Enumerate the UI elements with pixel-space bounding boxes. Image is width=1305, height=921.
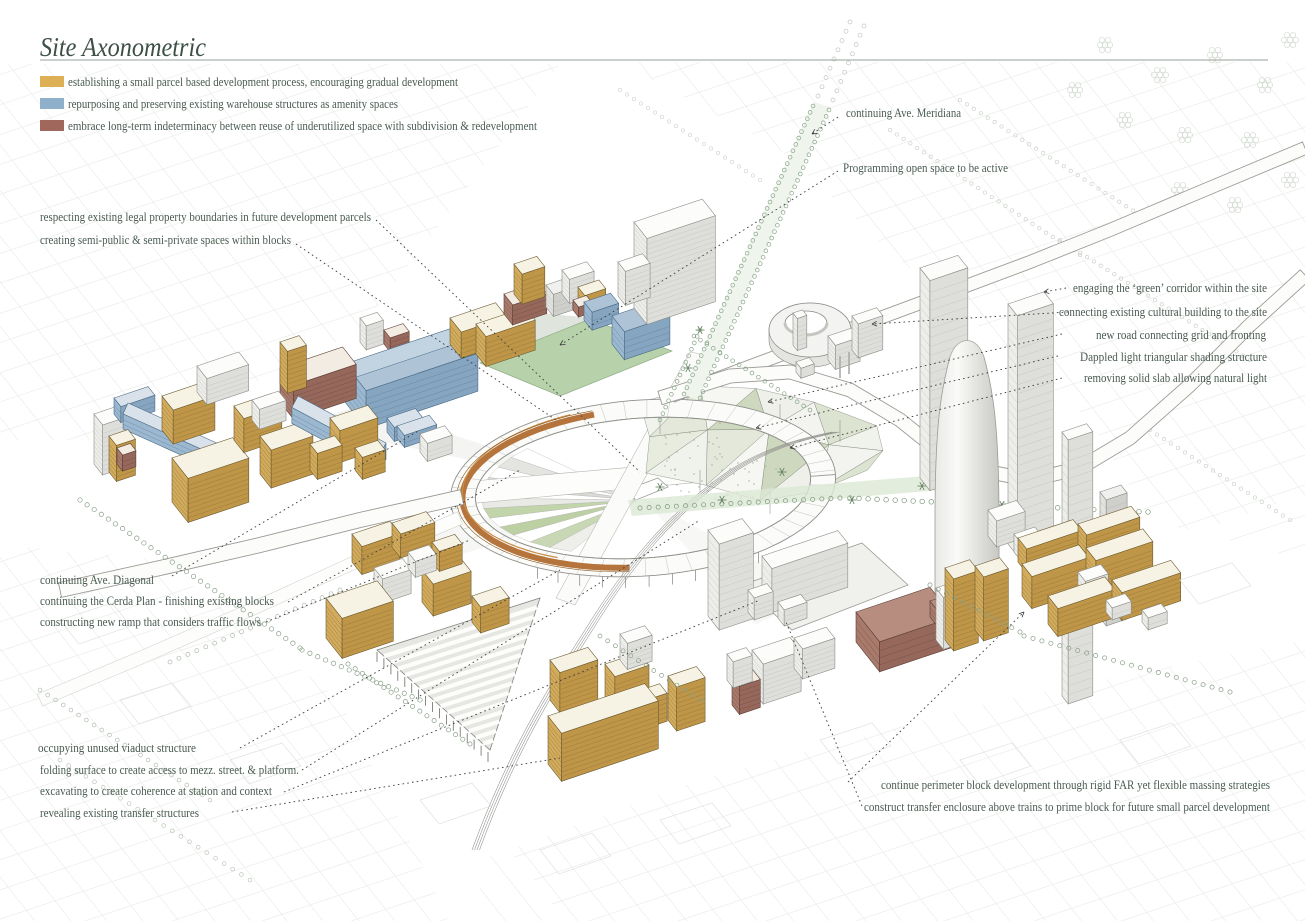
svg-text:connecting existing cultural b: connecting existing cultural building to… [1059, 305, 1267, 319]
svg-text:occupying unused viaduct struc: occupying unused viaduct structure [38, 741, 196, 755]
svg-text:folding surface to create acce: folding surface to create access to mezz… [40, 763, 299, 777]
svg-text:excavating to create coherence: excavating to create coherence at statio… [40, 784, 272, 798]
svg-text:continuing Ave. Meridiana: continuing Ave. Meridiana [846, 106, 961, 120]
svg-text:new road connecting grid and f: new road connecting grid and fronting [1096, 328, 1267, 342]
svg-text:creating semi-public & semi-pr: creating semi-public & semi-private spac… [40, 233, 291, 247]
svg-text:Dappled light triangular shadi: Dappled light triangular shading structu… [1080, 350, 1267, 364]
svg-text:repurposing and preserving exi: repurposing and preserving existing ware… [68, 97, 398, 111]
svg-text:continue perimeter block devel: continue perimeter block development thr… [881, 778, 1270, 792]
svg-text:continuing the Cerda Plan - fi: continuing the Cerda Plan - finishing ex… [40, 594, 274, 608]
svg-text:removing solid slab allowing n: removing solid slab allowing natural lig… [1084, 371, 1267, 385]
svg-text:respecting existing legal prop: respecting existing legal property bound… [40, 210, 371, 224]
svg-text:revealing existing transfer st: revealing existing transfer structures [40, 806, 199, 820]
svg-text:continuing Ave. Diagonal: continuing Ave. Diagonal [40, 573, 154, 587]
svg-text:engaging the ‘green’ corridor: engaging the ‘green’ corridor within the… [1073, 281, 1267, 295]
svg-text:constructing new ramp that con: constructing new ramp that considers tra… [40, 615, 261, 629]
svg-text:establishing a small parcel ba: establishing a small parcel based develo… [68, 75, 458, 89]
svg-text:construct transfer enclosure a: construct transfer enclosure above train… [864, 800, 1270, 814]
svg-text:Programming open space to be a: Programming open space to be active [843, 161, 1008, 175]
svg-text:embrace long-term indeterminac: embrace long-term indeterminacy between … [68, 119, 537, 133]
svg-text:Site Axonometric: Site Axonometric [40, 32, 206, 62]
